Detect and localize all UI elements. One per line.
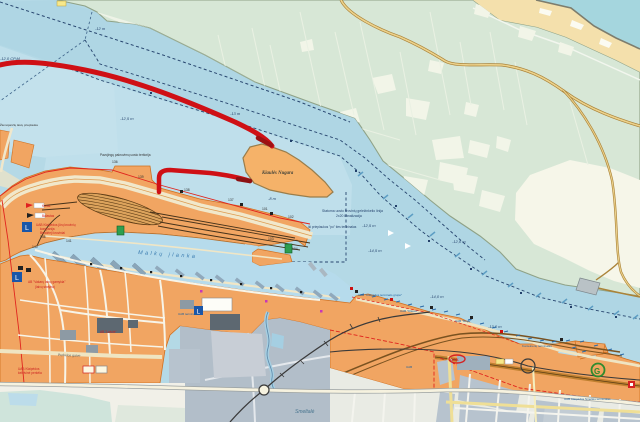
- svg-text:UAB Klaipėdos Smeltės terminal: UAB Klaipėdos Smeltės terminalas: [564, 397, 611, 401]
- svg-text:-13,0 m: -13,0 m: [488, 324, 502, 329]
- svg-text:138: 138: [184, 188, 190, 192]
- svg-text:AB "Vakarų laivų gamykla": AB "Vakarų laivų gamykla": [28, 280, 65, 284]
- svg-text:-12 m: -12 m: [95, 26, 106, 31]
- svg-text:L: L: [15, 275, 19, 282]
- svg-text:OSK: OSK: [450, 357, 459, 362]
- svg-text:-13 m: -13 m: [230, 111, 241, 116]
- svg-text:-8 m: -8 m: [268, 196, 277, 201]
- svg-text:Statoma uosto krovinių geležin: Statoma uosto krovinių geležinkelio lini…: [322, 209, 383, 213]
- svg-text:Pavojingų pakrovimų uosto teri: Pavojingų pakrovimų uosto teritorija: [100, 153, 151, 157]
- svg-text:146: 146: [40, 235, 46, 239]
- svg-text:139: 139: [138, 175, 144, 179]
- svg-text:103: 103: [268, 237, 274, 241]
- svg-text:Konteinerių terminalas: Konteinerių terminalas: [522, 344, 552, 348]
- svg-text:-12,5 m: -12,5 m: [120, 116, 134, 121]
- svg-text:UAB terminalas: UAB terminalas: [178, 312, 199, 316]
- svg-text:141: 141: [66, 239, 72, 243]
- svg-text:-14,5 m: -14,5 m: [368, 248, 382, 253]
- svg-text:AB "Laivitė": AB "Laivitė": [100, 330, 117, 334]
- svg-text:UAB "Klaipėdos terminalo grupė: UAB "Klaipėdos terminalo grupė": [358, 293, 402, 297]
- svg-text:iki prieplaukos "po" ties term: iki prieplaukos "po" ties terminalas: [308, 225, 357, 229]
- svg-text:(laivų statyba): (laivų statyba): [35, 285, 55, 289]
- svg-text:Kiaulės Nugara: Kiaulės Nugara: [261, 171, 294, 176]
- svg-text:104: 104: [292, 247, 298, 251]
- svg-text:UAB "Klasco": UAB "Klasco": [400, 309, 418, 313]
- svg-text:Smeltalė: Smeltalė: [295, 409, 315, 415]
- svg-text:-14,0 m: -14,0 m: [430, 294, 444, 299]
- svg-text:101: 101: [262, 207, 268, 211]
- svg-text:G: G: [594, 367, 600, 376]
- svg-text:Perkėlos gatvė: Perkėlos gatvė: [58, 353, 81, 358]
- svg-text:102: 102: [288, 215, 294, 219]
- svg-text:keleivinė perkėla: keleivinė perkėla: [18, 371, 42, 375]
- svg-text:-12,5 m: -12,5 m: [362, 223, 376, 228]
- svg-text:UAB: UAB: [406, 365, 412, 369]
- svg-text:-12,0 CP.M: -12,0 CP.M: [0, 56, 20, 61]
- svg-text:Balastas: Balastas: [42, 214, 55, 218]
- svg-text:L: L: [25, 225, 29, 232]
- svg-text:-12,0 m: -12,0 m: [452, 239, 466, 244]
- svg-text:Žiemojančių laivų prieplauka: Žiemojančių laivų prieplauka: [0, 122, 38, 127]
- svg-text:136: 136: [112, 160, 118, 164]
- svg-text:2x20 kanalizacija: 2x20 kanalizacija: [336, 214, 362, 218]
- svg-text:Kuras: Kuras: [42, 204, 51, 208]
- svg-text:137: 137: [228, 198, 234, 202]
- svg-text:140: 140: [32, 245, 38, 249]
